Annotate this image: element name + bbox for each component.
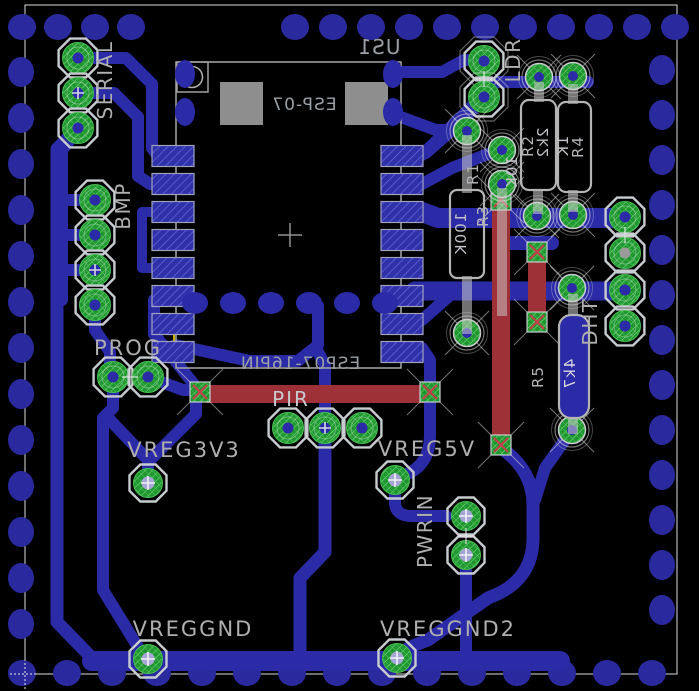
smd-pad[interactable] xyxy=(152,146,194,167)
castellation-pad[interactable] xyxy=(649,280,675,310)
castellation-pad[interactable] xyxy=(649,505,675,535)
module-bottom-pad[interactable] xyxy=(182,292,208,314)
castellation-pad[interactable] xyxy=(509,14,537,40)
resistor-value[interactable]: 10K xyxy=(503,156,521,188)
castellation-pad[interactable] xyxy=(44,14,72,40)
smd-pad[interactable] xyxy=(381,230,423,251)
label-serial[interactable]: SERIAL xyxy=(93,41,117,120)
castellation-pad[interactable] xyxy=(649,595,675,625)
castellation-pad[interactable] xyxy=(661,14,689,40)
castellation-pad[interactable] xyxy=(8,609,34,639)
castellation-pad[interactable] xyxy=(8,379,34,409)
castellation-pad[interactable] xyxy=(8,241,34,271)
label-dht[interactable]: DHT xyxy=(578,298,602,345)
module-footprint-text[interactable]: ESP07-16PIN xyxy=(240,354,360,374)
bmp-pad[interactable] xyxy=(76,216,115,255)
castellation-pad[interactable] xyxy=(649,100,675,130)
module-edge-pad[interactable] xyxy=(175,60,195,88)
castellation-pad[interactable] xyxy=(649,55,675,85)
castellation-pad[interactable] xyxy=(8,563,34,593)
castellation-pad[interactable] xyxy=(649,415,675,445)
module-shield-block xyxy=(345,82,388,125)
castellation-pad[interactable] xyxy=(649,550,675,580)
bmp-pad[interactable] xyxy=(76,181,115,220)
castellation-pad[interactable] xyxy=(585,14,613,40)
castellation-pad[interactable] xyxy=(319,14,347,40)
label-prog[interactable]: PROG xyxy=(94,336,162,360)
lead xyxy=(462,276,472,334)
castellation-pad[interactable] xyxy=(8,195,34,225)
castellation-pad[interactable] xyxy=(471,14,499,40)
resistor-ref[interactable]: R5 xyxy=(529,366,547,388)
module-bottom-pad[interactable] xyxy=(258,292,284,314)
dht-pad[interactable] xyxy=(606,307,645,346)
module-shield-block xyxy=(220,82,263,125)
label-pir[interactable]: PIR xyxy=(272,387,310,411)
label-bmp[interactable]: BMP xyxy=(111,182,135,230)
castellation-pad[interactable] xyxy=(8,425,34,455)
lead xyxy=(497,188,507,316)
castellation-pad[interactable] xyxy=(53,660,81,686)
castellation-pad[interactable] xyxy=(117,14,145,40)
pcb-board-canvas[interactable]: US1 ESP-07 ESP07-16PIN R1 100K R3 10K R xyxy=(0,0,699,691)
smd-pad[interactable] xyxy=(381,174,423,195)
serial-pad[interactable] xyxy=(59,74,98,113)
smd-pad[interactable] xyxy=(381,258,423,279)
vreggnd-pad[interactable] xyxy=(130,641,167,678)
pir-pad[interactable] xyxy=(269,409,308,448)
label-ldr[interactable]: LDR xyxy=(501,38,525,83)
castellation-pad[interactable] xyxy=(281,14,309,40)
smd-pad[interactable] xyxy=(152,258,194,279)
castellation-pad[interactable] xyxy=(649,235,675,265)
label-vreg5v[interactable]: VREG5V xyxy=(378,437,476,461)
pir-pad[interactable] xyxy=(306,409,345,448)
castellation-pad[interactable] xyxy=(649,325,675,355)
castellation-pad[interactable] xyxy=(649,460,675,490)
module-edge-pad[interactable] xyxy=(383,98,403,126)
bmp-pad[interactable] xyxy=(76,286,115,325)
module-edge-pad[interactable] xyxy=(175,98,195,126)
vreg5v-pad[interactable] xyxy=(377,462,414,499)
serial-pad[interactable] xyxy=(59,39,98,78)
smd-pad[interactable] xyxy=(381,202,423,223)
castellation-pad[interactable] xyxy=(8,333,34,363)
module-edge-pad[interactable] xyxy=(383,60,403,88)
castellation-pad[interactable] xyxy=(8,471,34,501)
castellation-pad[interactable] xyxy=(593,660,621,686)
smd-pad[interactable] xyxy=(152,202,194,223)
label-vreggnd[interactable]: VREGGND xyxy=(133,617,254,641)
castellation-pad[interactable] xyxy=(8,103,34,133)
castellation-pad[interactable] xyxy=(623,14,651,40)
smd-pad[interactable] xyxy=(381,342,423,363)
castellation-pad[interactable] xyxy=(8,660,36,686)
module-bottom-pad[interactable] xyxy=(334,292,360,314)
bmp-pad[interactable] xyxy=(76,251,115,290)
castellation-pad[interactable] xyxy=(8,287,34,317)
castellation-pad[interactable] xyxy=(8,57,34,87)
resistor-value[interactable]: 100K xyxy=(452,213,470,256)
castellation-pad[interactable] xyxy=(649,145,675,175)
smd-pad[interactable] xyxy=(152,174,194,195)
module-bottom-pad[interactable] xyxy=(372,292,398,314)
castellation-pad[interactable] xyxy=(8,149,34,179)
castellation-pad[interactable] xyxy=(649,190,675,220)
castellation-pad[interactable] xyxy=(638,660,666,686)
castellation-pad[interactable] xyxy=(8,517,34,547)
pir-pad[interactable] xyxy=(343,409,382,448)
castellation-pad[interactable] xyxy=(8,14,36,40)
label-pwrin[interactable]: PWRIN xyxy=(413,494,437,568)
resistor-ref[interactable]: R1 xyxy=(464,163,482,185)
castellation-pad[interactable] xyxy=(547,14,575,40)
lead xyxy=(568,190,578,212)
resistor-value[interactable]: 4k7 xyxy=(561,359,579,390)
label-vreg3v3[interactable]: VREG3V3 xyxy=(127,438,241,462)
vreggnd2-pad[interactable] xyxy=(379,640,416,677)
serial-pad[interactable] xyxy=(59,109,98,148)
resistor-value[interactable]: 2k2 xyxy=(534,128,552,159)
label-vreggnd2[interactable]: VREGGND2 xyxy=(380,617,516,641)
smd-pad[interactable] xyxy=(381,314,423,335)
lead xyxy=(533,190,543,214)
vreg3v3-pad[interactable] xyxy=(130,465,167,502)
resistor-ref[interactable]: R4 xyxy=(569,136,587,158)
smd-pad[interactable] xyxy=(381,146,423,167)
module-value-text[interactable]: ESP-07 xyxy=(271,95,336,115)
castellation-pad[interactable] xyxy=(81,14,109,40)
module-bottom-pad[interactable] xyxy=(220,292,246,314)
module-bottom-pad[interactable] xyxy=(296,292,322,314)
resistor-ref[interactable]: R3 xyxy=(474,205,492,227)
module-ref-text[interactable]: US1 xyxy=(357,35,400,59)
smd-pad[interactable] xyxy=(152,230,194,251)
smd-pad[interactable] xyxy=(152,314,194,335)
castellation-pad[interactable] xyxy=(433,14,461,40)
dht-pad[interactable] xyxy=(606,271,645,310)
castellation-pad[interactable] xyxy=(649,370,675,400)
